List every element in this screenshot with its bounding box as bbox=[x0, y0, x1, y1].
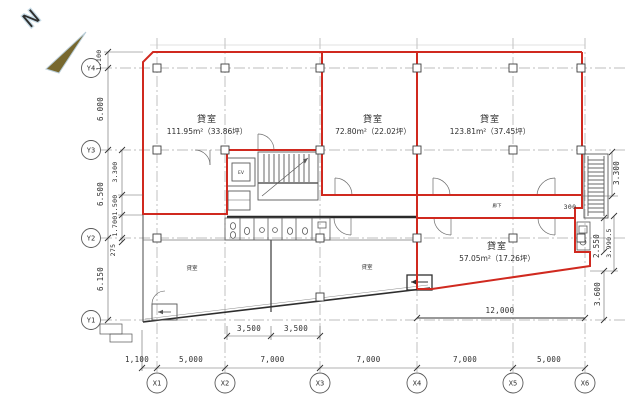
room5-name: 貸室 bbox=[186, 264, 198, 272]
dimension-ticks bbox=[105, 49, 617, 371]
room2-name: 貸室 bbox=[363, 113, 383, 125]
external-stair bbox=[584, 154, 608, 218]
dim-3500a: 3,500 bbox=[237, 324, 261, 333]
dim-left-3300: 3.300 bbox=[111, 161, 119, 182]
dim-left-6150: 6.150 bbox=[96, 267, 105, 291]
room1-area: 111.95m²（33.86坪） bbox=[167, 127, 248, 136]
dim-left-1700: 1.700 bbox=[111, 215, 119, 236]
grid-bubble-y1: Y1 bbox=[87, 317, 95, 325]
north-label: N bbox=[18, 4, 45, 32]
grid-bubble-x5: X5 bbox=[509, 380, 517, 388]
room3-area: 123.81m²（37.45坪） bbox=[450, 127, 531, 136]
grid-bubbles bbox=[82, 59, 596, 394]
north-compass: N bbox=[18, 4, 86, 73]
dim-bottom-7000c: 7,000 bbox=[453, 355, 477, 364]
room4-name: 貸室 bbox=[487, 240, 507, 252]
dim-bottom-7000b: 7,000 bbox=[356, 355, 380, 364]
dim-bottom-5000b: 5,000 bbox=[537, 355, 561, 364]
dimension-texts-bottom: 1,100 5,000 7,000 7,000 7,000 5,000 3,50… bbox=[125, 306, 561, 364]
dim-left-1500: 1.500 bbox=[111, 194, 119, 215]
dim-3500b: 3,500 bbox=[284, 324, 308, 333]
room4-area: 57.05m²（17.26坪） bbox=[459, 254, 535, 263]
grid-bubble-labels: Y4 Y3 Y2 Y1 X1 X2 X3 X4 X5 X6 bbox=[87, 65, 589, 388]
grid-lines bbox=[101, 38, 628, 374]
room1-name: 貸室 bbox=[197, 113, 217, 125]
north-arrow bbox=[46, 32, 86, 73]
grid-bubble-y2: Y2 bbox=[87, 235, 95, 243]
grid-bubble-x2: X2 bbox=[221, 380, 229, 388]
grid-bubble-x4: X4 bbox=[413, 380, 421, 388]
grid-bubble-x3: X3 bbox=[316, 380, 324, 388]
grid-bubble-x6: X6 bbox=[581, 380, 589, 388]
floor-plan-page: N Y4 Y3 Y2 Y1 X1 X2 X3 X4 X5 X6 1,100 5,… bbox=[0, 0, 640, 403]
dim-right-3600: 3.600 bbox=[593, 282, 602, 306]
grid-bubble-x1: X1 bbox=[153, 380, 161, 388]
dim-bottom-7000a: 7,000 bbox=[260, 355, 284, 364]
dim-right-3300: 3.300 bbox=[612, 161, 621, 185]
dim-bottom-5000a: 5,000 bbox=[179, 355, 203, 364]
dim-12000: 12,000 bbox=[486, 306, 515, 315]
dim-left-275: 275 bbox=[109, 244, 117, 257]
room6-name: 貸室 bbox=[361, 263, 373, 271]
elevator-label: EV bbox=[238, 170, 245, 176]
dimension-texts-left: 1.100 6.000 6.500 6.150 3.300 1.500 1.70… bbox=[95, 49, 119, 291]
dim-right-300: 300 bbox=[564, 203, 577, 211]
dimension-lines bbox=[104, 52, 618, 371]
dim-bottom-1100: 1,100 bbox=[125, 355, 149, 364]
grid-bubble-y3: Y3 bbox=[87, 147, 95, 155]
corridor-label: 廊下 bbox=[493, 202, 502, 209]
dim-left-6500: 6.500 bbox=[96, 182, 105, 206]
dimension-texts-right: 3.300 300 2.550 3.990.5 3.600 bbox=[564, 161, 621, 306]
core-toilets bbox=[225, 218, 330, 240]
floor-plan-canvas: N Y4 Y3 Y2 Y1 X1 X2 X3 X4 X5 X6 1,100 5,… bbox=[0, 0, 640, 403]
room2-area: 72.80m²（22.02坪） bbox=[335, 127, 411, 136]
dim-left-6000: 6.000 bbox=[96, 97, 105, 121]
room-labels: 貸室 111.95m²（33.86坪） 貸室 72.80m²（22.02坪） 貸… bbox=[167, 113, 535, 272]
dim-left-1100: 1.100 bbox=[95, 49, 103, 70]
room3-name: 貸室 bbox=[480, 113, 500, 125]
dim-right-39905: 3.990.5 bbox=[605, 228, 613, 258]
dim-right-2550: 2.550 bbox=[592, 234, 601, 258]
core-elevator-stair bbox=[227, 152, 318, 210]
grid-bubble-y4: Y4 bbox=[87, 65, 95, 73]
